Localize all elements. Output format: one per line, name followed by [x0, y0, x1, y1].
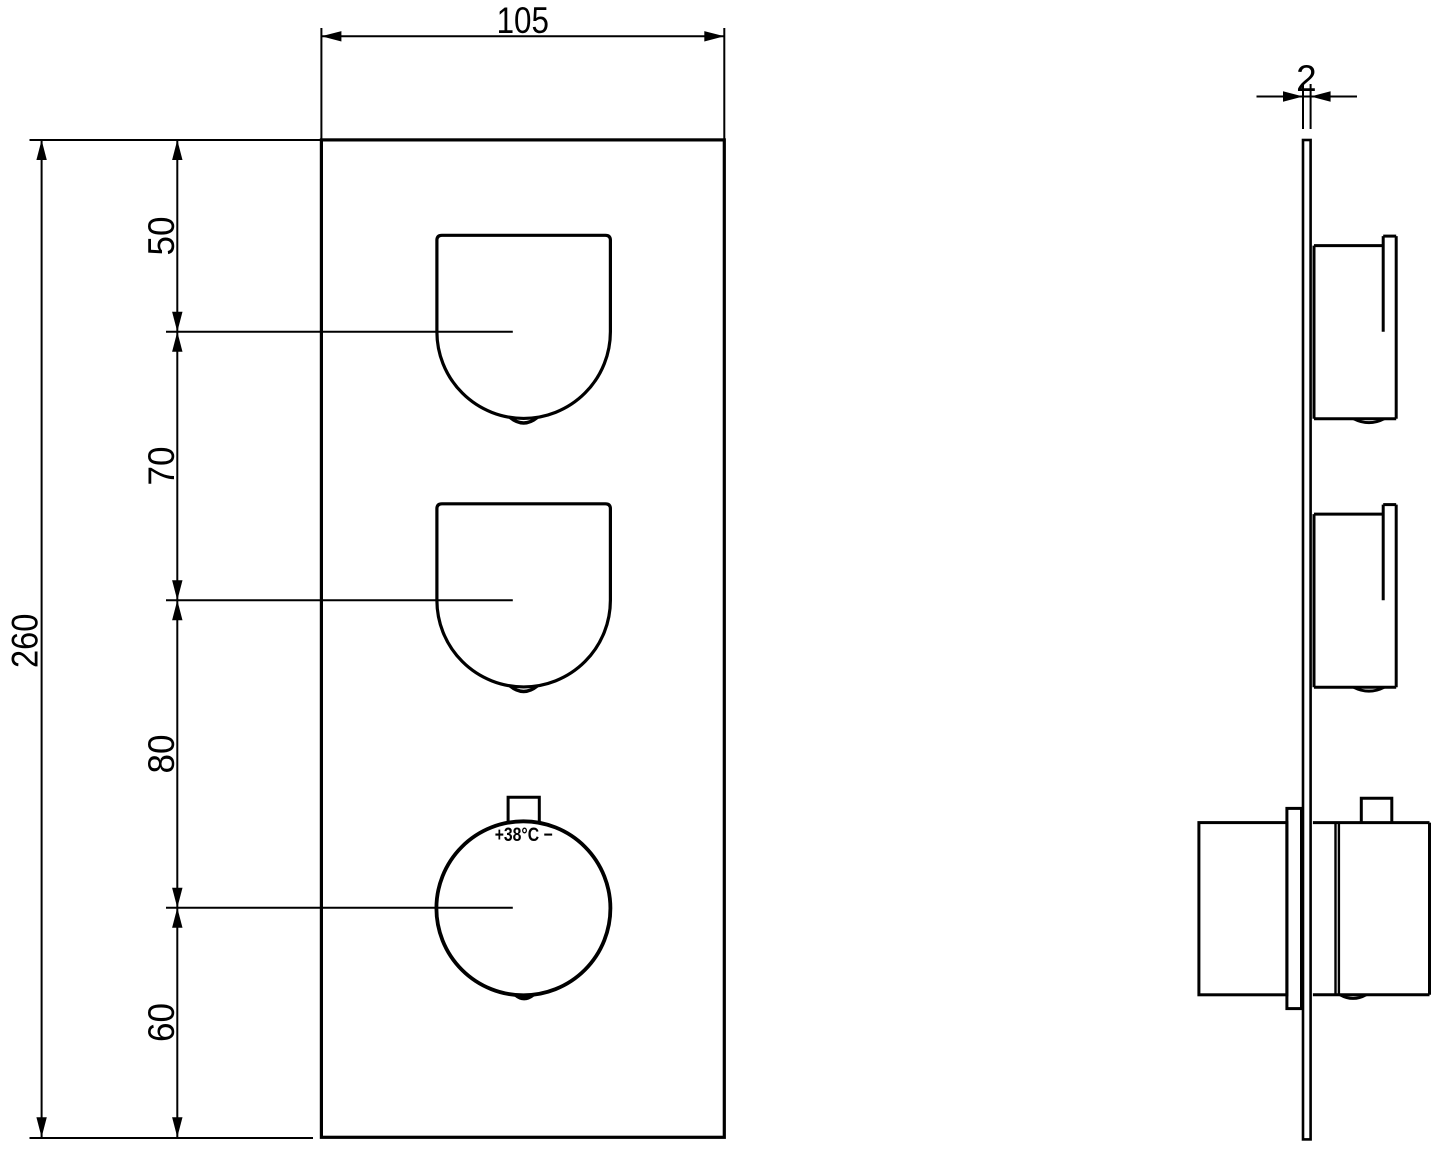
svg-text:2: 2: [1296, 58, 1317, 99]
svg-text:260: 260: [4, 614, 45, 668]
svg-text:80: 80: [141, 735, 182, 774]
svg-text:60: 60: [141, 1003, 182, 1042]
svg-text:70: 70: [141, 447, 182, 486]
svg-text:105: 105: [497, 0, 549, 41]
svg-text:50: 50: [141, 217, 182, 256]
svg-text:+38°C −: +38°C −: [495, 825, 553, 846]
